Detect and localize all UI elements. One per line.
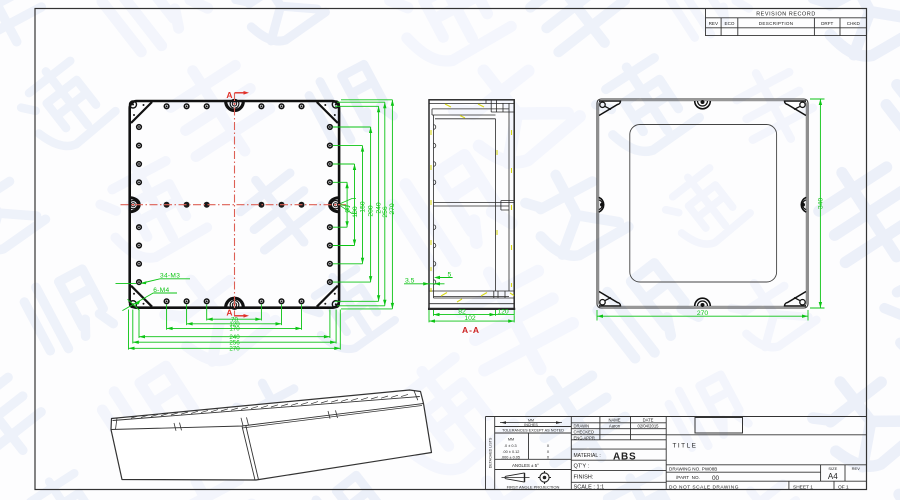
svg-text:5: 5 (448, 271, 452, 278)
svg-text:170: 170 (229, 326, 240, 333)
svg-text:ECO: ECO (725, 21, 735, 26)
svg-text:A: A (226, 90, 232, 100)
svg-text:SHEET 1: SHEET 1 (793, 484, 813, 490)
svg-text:02/04/2015: 02/04/2015 (638, 424, 660, 429)
svg-text:A-A: A-A (462, 325, 480, 335)
svg-text:.00 ± 0.12: .00 ± 0.12 (503, 450, 520, 454)
svg-text:270: 270 (697, 310, 709, 317)
svg-text:MATERIAL :: MATERIAL : (574, 453, 601, 459)
svg-text:102: 102 (464, 315, 476, 322)
svg-text:REV: REV (709, 21, 719, 26)
svg-text:REV: REV (852, 466, 861, 471)
svg-text:SCALE : 1:1: SCALE : 1:1 (574, 484, 605, 490)
svg-text:.000 ± 0.05: .000 ± 0.05 (501, 455, 520, 459)
svg-text:X: X (547, 455, 550, 459)
svg-text:DETACHED LISTS: DETACHED LISTS (489, 437, 493, 468)
svg-text:FIRST ANGLE PROJECTION: FIRST ANGLE PROJECTION (507, 484, 560, 489)
svg-text:X: X (547, 450, 550, 454)
svg-text:120: 120 (497, 308, 509, 315)
svg-text:ENG APPR: ENG APPR (574, 435, 595, 440)
svg-text:270: 270 (389, 203, 396, 215)
svg-text:3.5: 3.5 (405, 278, 415, 285)
svg-text:NAME: NAME (608, 418, 620, 423)
svg-text:DRAWN: DRAWN (574, 424, 590, 429)
svg-text:256: 256 (382, 206, 389, 218)
svg-text:DESCRIPTION: DESCRIPTION (759, 21, 794, 26)
svg-text:DO NOT SCALE DRAWING: DO NOT SCALE DRAWING (669, 484, 739, 490)
svg-text:FINISH:: FINISH: (574, 475, 594, 481)
svg-text:CHKD: CHKD (847, 21, 861, 26)
svg-text:DRFT: DRFT (821, 21, 833, 26)
svg-text:DATE: DATE (643, 418, 654, 423)
svg-text:Aaron: Aaron (609, 424, 621, 429)
svg-text:REVISION RECORD: REVISION RECORD (756, 11, 816, 17)
svg-text:INCHES: INCHES (524, 423, 538, 427)
svg-text:200: 200 (368, 205, 375, 217)
svg-text:CHECKED: CHECKED (574, 430, 594, 435)
svg-text:MM: MM (528, 419, 534, 423)
svg-text:/PART NO.: /PART NO. (676, 475, 700, 480)
svg-text:X: X (547, 444, 550, 448)
svg-text:.0 ± 0.3: .0 ± 0.3 (504, 444, 517, 448)
svg-text:SIZE: SIZE (828, 466, 837, 471)
svg-text:00: 00 (712, 475, 720, 482)
svg-text:150: 150 (360, 201, 367, 213)
svg-text:340: 340 (817, 198, 824, 210)
svg-text:ANGLES ± 5°: ANGLES ± 5° (512, 463, 539, 468)
svg-text:A4: A4 (828, 472, 838, 481)
svg-text:QT'Y :: QT'Y : (574, 464, 590, 470)
svg-text:MM: MM (508, 438, 514, 442)
svg-text:270: 270 (229, 345, 240, 352)
svg-text:TOLERANCES EXCEPT AS NOTED: TOLERANCES EXCEPT AS NOTED (502, 429, 564, 433)
svg-text:DRAWING NO. PW08B: DRAWING NO. PW08B (669, 467, 717, 472)
svg-text:ABS: ABS (613, 452, 637, 463)
svg-text:TITLE: TITLE (673, 443, 698, 450)
svg-text:100: 100 (352, 206, 359, 218)
svg-text:OF 1: OF 1 (838, 484, 849, 490)
